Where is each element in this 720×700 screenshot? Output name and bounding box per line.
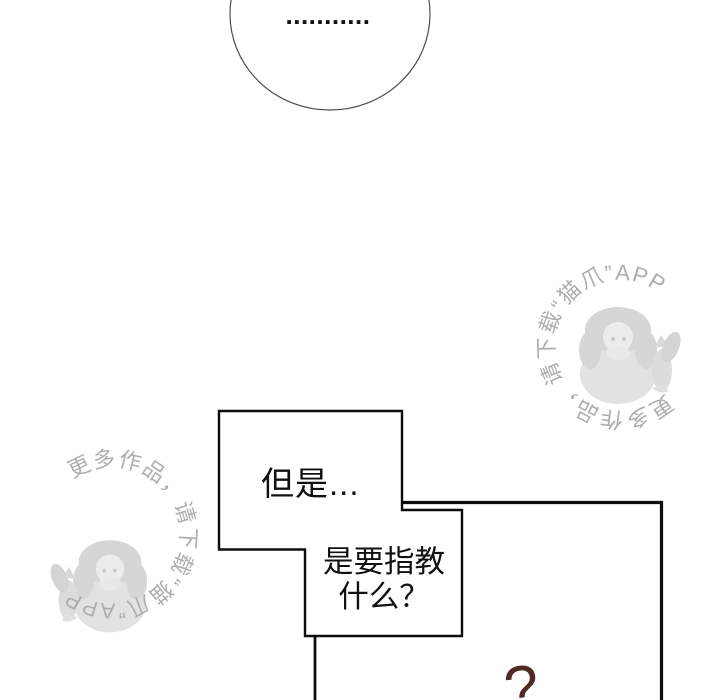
question-mark-sfx: ?	[500, 652, 544, 700]
watermark-illustration	[579, 307, 684, 404]
watermark-right: 更多作品，请下载“猫爪”APP	[534, 260, 685, 433]
bubble-text-b-line2: 什么？	[338, 580, 430, 614]
bubble-text-a: 但是...	[261, 465, 360, 502]
watermark-text: 更多作品，请下载“猫爪”APP	[59, 446, 201, 624]
thought-bubble-dots: ...........	[286, 0, 371, 30]
comic-page-canvas: 更多作品，请下载“猫爪”APP 更多作品，请下载“猫爪”APP ........…	[0, 0, 720, 700]
bubble-text-b-line1: 是要指教	[323, 545, 445, 579]
comic-page: 更多作品，请下载“猫爪”APP 更多作品，请下载“猫爪”APP ........…	[0, 0, 720, 700]
watermark-left: 更多作品，请下载“猫爪”APP	[47, 446, 201, 633]
